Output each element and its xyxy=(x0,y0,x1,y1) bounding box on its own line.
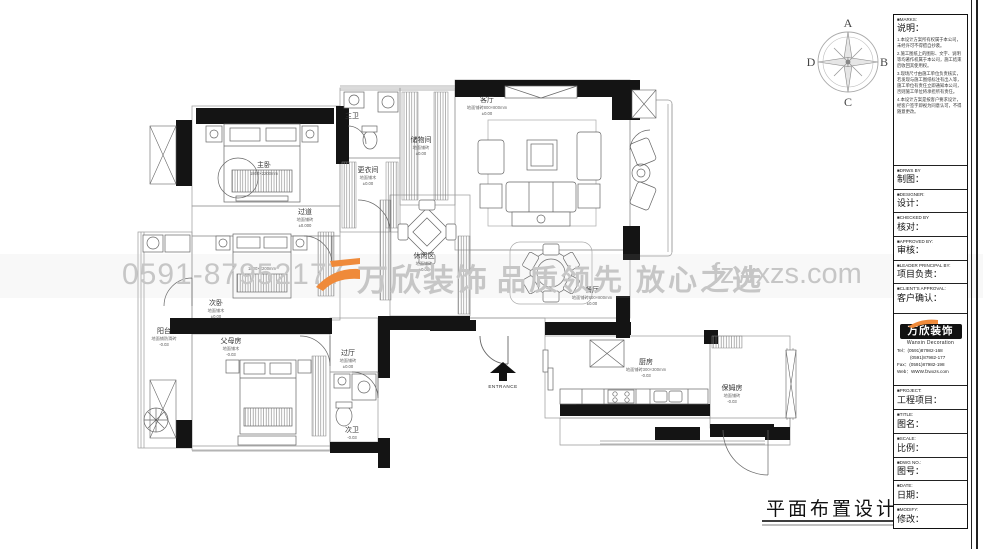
label-corridor: 过道 xyxy=(298,207,312,216)
note-4: 4.本设计方案是按客户要求设计，经客户签字即视为同意认可，不得随意更改。 xyxy=(897,97,964,115)
label-master-bedroom: 主卧 xyxy=(257,160,271,169)
svg-text:±0.00: ±0.00 xyxy=(343,364,354,369)
note-2: 2.施工图纸上的图形、文字、说明等均著作权属于本公司，施工结束后收回其使用权。 xyxy=(897,51,964,69)
company-tel-2: (0591)87982-177 xyxy=(897,355,964,362)
company-web: Web：WWW.fzwxzs.com xyxy=(897,369,964,376)
svg-text:地面铺防滑砖: 地面铺防滑砖 xyxy=(151,335,176,342)
company-tel-1: Tel：(0591)87982-168 xyxy=(897,348,964,355)
svg-text:1800×2200mm: 1800×2200mm xyxy=(250,171,279,176)
compass-south: C xyxy=(844,95,852,109)
drawing-sheet: ENTRANCE 主卧 1800×2200mm 更衣间 地面铺木 ±0.00 主… xyxy=(0,0,983,549)
svg-text:地面铺砖: 地面铺砖 xyxy=(724,392,741,399)
note-3: 3.现场尺寸由施工单位负责核实，若发现与施工图纸标注有出入等，施工单位有责任立即… xyxy=(897,71,964,95)
svg-text:地面铺砖: 地面铺砖 xyxy=(416,260,433,267)
label-storage: 储物间 xyxy=(411,135,432,144)
svg-text:地面铺木: 地面铺木 xyxy=(360,174,378,181)
company-name-en: Wanxin Decoration xyxy=(897,340,964,346)
title-block: ■MARKS: 说明： 1.本设计方案所有权属于本公司，未经许可不得擅自抄袭。 … xyxy=(893,14,968,529)
field-designer: ■DESIGNER: 设计： xyxy=(894,189,967,213)
title-block-marks: ■MARKS: 说明： 1.本设计方案所有权属于本公司，未经许可不得擅自抄袭。 … xyxy=(894,15,967,165)
svg-text:地面铺木: 地面铺木 xyxy=(208,307,226,314)
company-logo-swoosh-icon xyxy=(908,318,938,328)
sheet-border-inner xyxy=(971,0,972,549)
field-scale: ■SCALE: 比例： xyxy=(894,433,967,457)
svg-text:-0.03: -0.03 xyxy=(727,399,737,404)
label-leisure-area: 休闲区 xyxy=(414,251,435,260)
label-second-bath: 次卫 xyxy=(345,425,359,434)
svg-text:地面铺砖: 地面铺砖 xyxy=(297,216,314,223)
svg-text:±0.00: ±0.00 xyxy=(587,301,598,306)
label-balcony: 阳台 xyxy=(157,326,171,335)
svg-text:地面铺砖: 地面铺砖 xyxy=(413,144,430,151)
svg-text:地面铺木: 地面铺木 xyxy=(223,345,241,352)
svg-text:-0.03: -0.03 xyxy=(226,352,236,357)
field-project: ■PROJECT: 工程项目： xyxy=(894,385,967,409)
label-dining-room: 餐厅 xyxy=(585,285,599,294)
company-fax: Fax：(0591)87982-198 xyxy=(897,362,964,369)
label-kitchen: 厨房 xyxy=(639,357,653,366)
svg-text:地面铺砖800×800mm: 地面铺砖800×800mm xyxy=(467,104,508,111)
compass-rose: A B C D xyxy=(807,16,888,109)
field-client-approval: ■CLIENT'S APPROVAL: 客户确认： xyxy=(894,283,967,313)
svg-text:-0.03: -0.03 xyxy=(641,373,651,378)
entrance-arrow: ENTRANCE xyxy=(488,362,517,389)
compass-north: A xyxy=(844,16,853,30)
floor-plan-drawing: ENTRANCE 主卧 1800×2200mm 更衣间 地面铺木 ±0.00 主… xyxy=(0,0,983,549)
svg-text:±0.00: ±0.00 xyxy=(363,181,374,186)
field-drws-by: ■DRWS BY 制图： xyxy=(894,165,967,189)
field-dwg-no: ■DWG NO.: 图号： xyxy=(894,457,967,481)
svg-text:地面铺砖300×300mm: 地面铺砖300×300mm xyxy=(626,366,667,373)
field-title: ■TITLE: 图名： xyxy=(894,409,967,433)
compass-east: B xyxy=(880,55,888,69)
svg-text:±0.00: ±0.00 xyxy=(419,267,430,272)
sheet-border-outer xyxy=(976,0,978,549)
label-dressing-room: 更衣间 xyxy=(358,165,379,174)
svg-text:±0.000: ±0.000 xyxy=(299,223,312,228)
label-master-bath: 主卫 xyxy=(345,111,359,120)
label-hallway: 过厅 xyxy=(341,348,355,357)
label-living-room: 客厅 xyxy=(480,95,494,104)
compass-west: D xyxy=(807,55,816,69)
svg-text:-0.03: -0.03 xyxy=(347,435,357,440)
field-lead-principal: ■LEADER PRINCIPAL BY: 项目负责： xyxy=(894,260,967,284)
field-approved-by: ■APPROVED BY: 审核： xyxy=(894,236,967,260)
svg-text:1800×2200mm: 1800×2200mm xyxy=(248,266,277,271)
label-maid-room: 保姆房 xyxy=(722,383,743,392)
svg-text:±0.00: ±0.00 xyxy=(416,151,427,156)
svg-text:地面铺砖: 地面铺砖 xyxy=(340,357,357,364)
company-logo: 万欣装饰 xyxy=(900,324,962,339)
svg-text:-0.03: -0.03 xyxy=(159,342,169,347)
note-1: 1.本设计方案所有权属于本公司，未经许可不得擅自抄袭。 xyxy=(897,37,964,49)
company-block: 万欣装饰 Wanxin Decoration Tel：(0591)87982-1… xyxy=(894,313,967,385)
svg-text:±0.00: ±0.00 xyxy=(482,111,493,116)
svg-text:地面铺砖800×800mm: 地面铺砖800×800mm xyxy=(572,294,613,301)
field-modify: ■MODIFY: 修改： xyxy=(894,504,967,528)
svg-text:±0.00: ±0.00 xyxy=(211,314,222,319)
label-second-bedroom: 次卧 xyxy=(209,298,223,307)
entrance-label: ENTRANCE xyxy=(488,384,517,389)
field-date: ■DATE: 日期： xyxy=(894,480,967,504)
label-parents-room: 父母房 xyxy=(221,336,242,345)
field-checked-by: ■CHECKED BY 核对： xyxy=(894,212,967,236)
company-contacts: Tel：(0591)87982-168 (0591)87982-177 Fax：… xyxy=(897,348,964,376)
